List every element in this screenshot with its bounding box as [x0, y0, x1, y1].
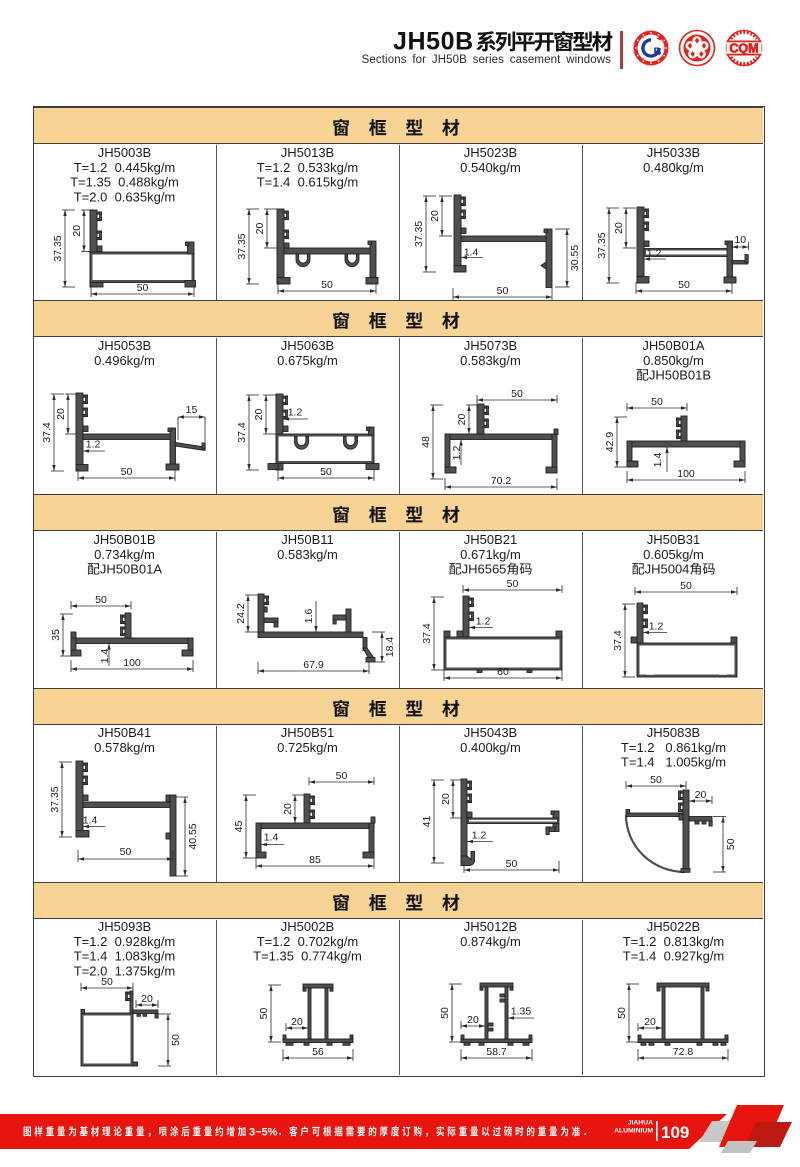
svg-text:ALUMINIUM: ALUMINIUM: [614, 1128, 653, 1135]
svg-text:CQM: CQM: [729, 42, 758, 56]
svg-text:3~5%: 3~5%: [249, 1126, 278, 1138]
svg-text:109: 109: [661, 1123, 689, 1142]
svg-text:B: B: [654, 46, 662, 58]
svg-text:JH50B: JH50B: [393, 28, 474, 56]
svg-text:JIAHUA: JIAHUA: [628, 1120, 653, 1127]
